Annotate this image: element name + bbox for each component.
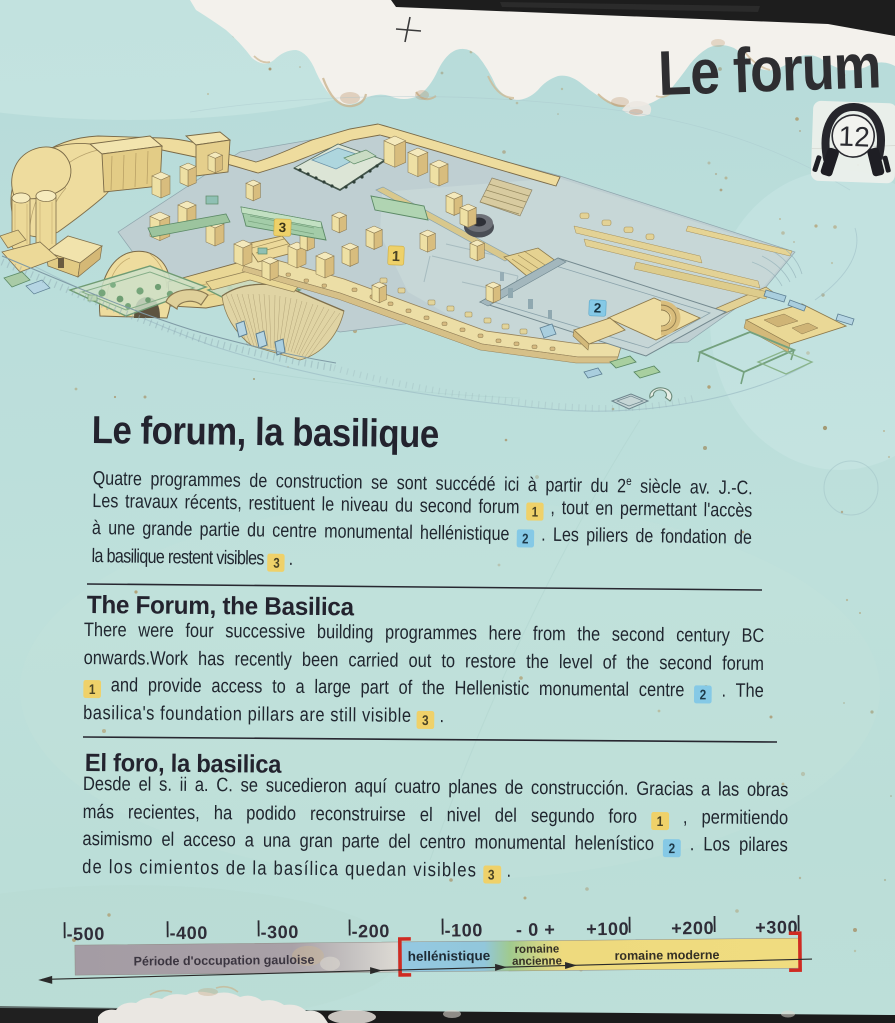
svg-text:+100: +100: [586, 919, 629, 939]
svg-text:3: 3: [278, 220, 287, 235]
svg-text:- 0 +: - 0 +: [516, 919, 556, 939]
svg-text:romaine: romaine: [514, 943, 559, 955]
svg-text:Période d'occupation gauloise: Période d'occupation gauloise: [134, 953, 315, 969]
svg-text:-400: -400: [169, 923, 208, 943]
svg-text:-100: -100: [444, 920, 483, 940]
svg-text:-200: -200: [351, 921, 390, 941]
svg-text:hellénistique: hellénistique: [408, 948, 491, 964]
svg-text:-500: -500: [66, 924, 105, 944]
svg-text:2: 2: [593, 300, 601, 315]
svg-text:12: 12: [838, 121, 870, 153]
svg-text:1: 1: [392, 249, 401, 265]
svg-text:romaine moderne: romaine moderne: [614, 948, 719, 963]
svg-text:-300: -300: [260, 922, 299, 942]
svg-text:+200: +200: [671, 918, 714, 938]
